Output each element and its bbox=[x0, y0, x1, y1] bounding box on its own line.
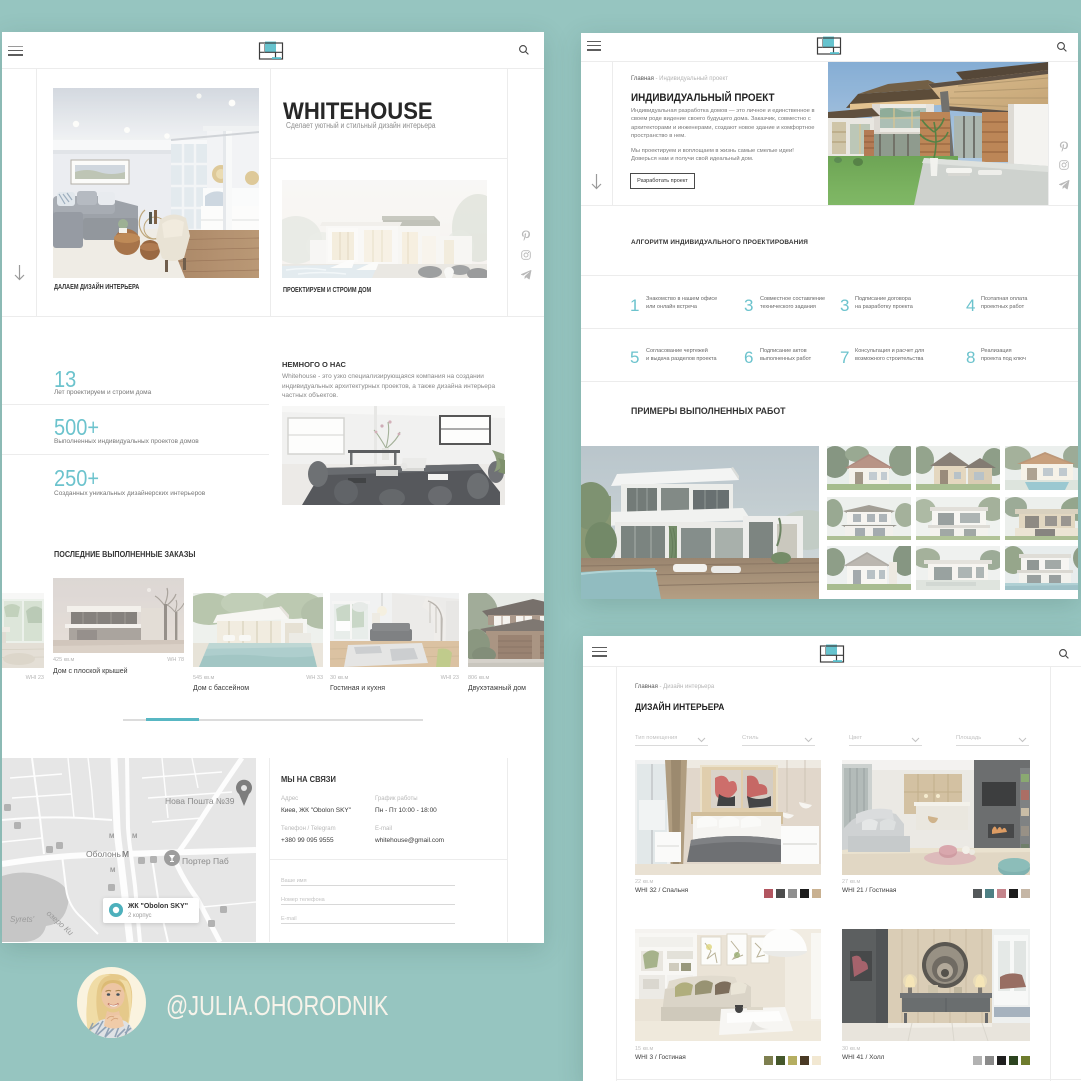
svg-text:Syrets': Syrets' bbox=[10, 915, 35, 924]
svg-text:ЖК "Obolon SKY": ЖК "Obolon SKY" bbox=[127, 903, 188, 910]
svg-text:Нова Пошта №39: Нова Пошта №39 bbox=[165, 796, 235, 806]
svg-text:Портер Паб: Портер Паб bbox=[182, 856, 229, 866]
svg-text:М: М bbox=[109, 833, 114, 840]
svg-text:М: М bbox=[122, 849, 129, 859]
svg-text:М: М bbox=[132, 833, 137, 840]
svg-text:Оболонь: Оболонь bbox=[86, 849, 121, 859]
svg-text:2 корпус: 2 корпус bbox=[128, 913, 152, 919]
svg-text:М: М bbox=[110, 867, 115, 874]
